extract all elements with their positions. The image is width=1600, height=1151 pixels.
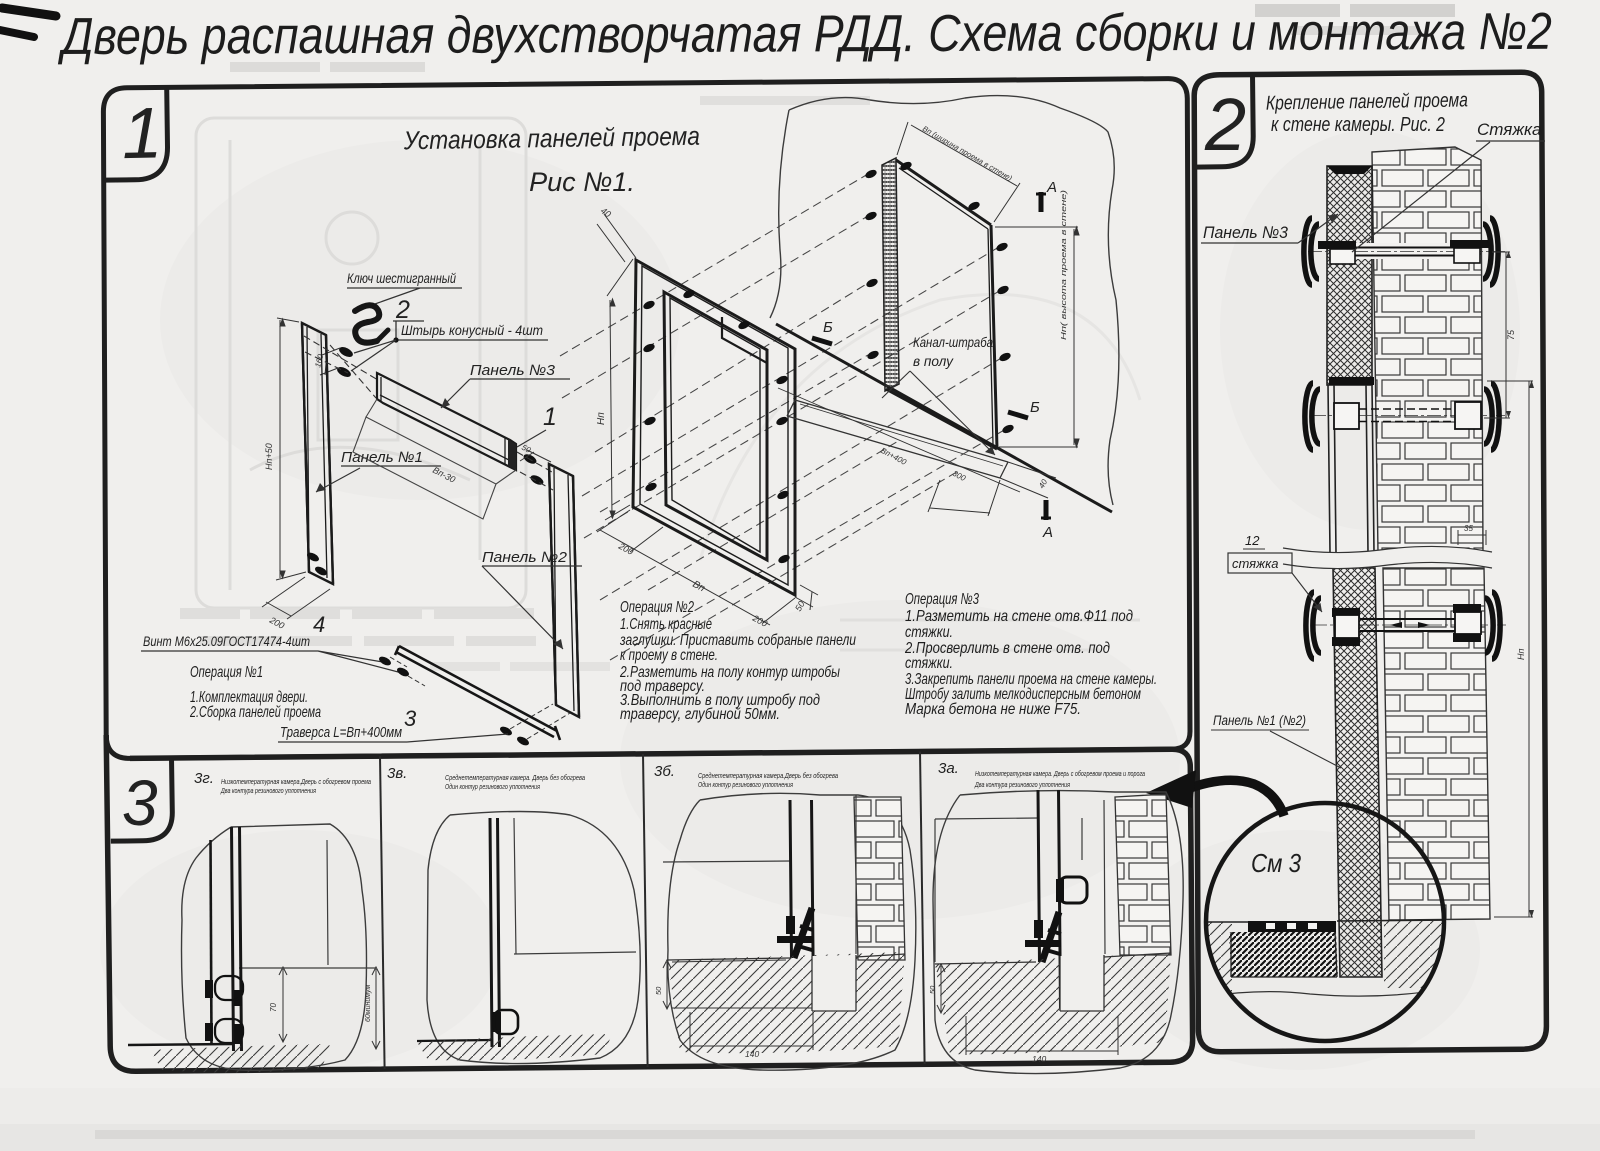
svg-text:35: 35 <box>1464 524 1473 533</box>
svg-text:Вп (ширина проема в стене): Вп (ширина проема в стене) <box>921 124 1014 183</box>
svg-text:Канал-штраба: Канал-штраба <box>913 334 993 350</box>
svg-text:60минимум: 60минимум <box>365 985 372 1022</box>
svg-text:12: 12 <box>1245 533 1260 548</box>
svg-text:Панель №2: Панель №2 <box>482 549 568 566</box>
svg-text:Траверса L=Вп+400мм: Траверса L=Вп+400мм <box>280 725 402 741</box>
svg-text:Операция №1: Операция №1 <box>190 664 263 681</box>
svg-text:Дверь распашная двухстворчатая: Дверь распашная двухстворчатая РДД. Схем… <box>58 3 1553 66</box>
svg-text:4: 4 <box>313 612 325 637</box>
svg-text:200: 200 <box>616 540 635 556</box>
svg-text:Б: Б <box>823 319 833 336</box>
svg-text:2: 2 <box>395 296 410 324</box>
svg-text:75: 75 <box>1506 329 1516 340</box>
svg-text:Крепление панелей проема: Крепление панелей проема <box>1266 89 1468 114</box>
svg-text:Штырь конусный - 4шт: Штырь конусный - 4шт <box>401 322 543 338</box>
svg-text:к проему в стене.: к проему в стене. <box>620 647 718 664</box>
svg-text:3в.: 3в. <box>387 765 407 782</box>
svg-text:3а.: 3а. <box>938 760 959 777</box>
svg-text:Один контур резинового уплотне: Один контур резинового уплотнения <box>698 781 793 789</box>
svg-text:Вп+400: Вп+400 <box>879 446 908 467</box>
svg-text:Нп( высота проема в стене): Нп( высота проема в стене) <box>1059 189 1068 340</box>
svg-text:к стене камеры. Рис. 2: к стене камеры. Рис. 2 <box>1271 114 1445 136</box>
svg-text:50: 50 <box>654 986 663 995</box>
svg-text:70: 70 <box>269 1003 278 1012</box>
svg-text:Рис №1.: Рис №1. <box>529 167 635 197</box>
svg-text:Панель №3: Панель №3 <box>1203 223 1289 242</box>
svg-text:Панель №1 (№2): Панель №1 (№2) <box>1213 713 1306 728</box>
svg-text:300: 300 <box>951 469 967 483</box>
svg-text:А: А <box>1042 524 1053 541</box>
svg-text:Операция №3: Операция №3 <box>905 591 979 608</box>
svg-text:Вп: Вп <box>691 579 707 595</box>
svg-text:в полу: в полу <box>913 353 954 369</box>
svg-text:Среднетемпературная камера. Дв: Среднетемпературная камера. Дверь без об… <box>445 774 585 782</box>
svg-text:См 3: См 3 <box>1251 848 1301 878</box>
svg-text:Один контур резинового уплотне: Один контур резинового уплотнения <box>445 783 540 791</box>
svg-text:Б: Б <box>1030 399 1040 416</box>
svg-text:стяжка: стяжка <box>1232 556 1278 571</box>
svg-text:3: 3 <box>122 767 158 839</box>
svg-text:Стяжка: Стяжка <box>1477 120 1542 139</box>
svg-text:Ключ шестигранный: Ключ шестигранный <box>347 270 456 286</box>
svg-text:1.Разметить на стене отв.Ф11 п: 1.Разметить на стене отв.Ф11 под <box>905 608 1133 625</box>
svg-text:3: 3 <box>404 706 417 731</box>
svg-text:2.Сборка панелей проема: 2.Сборка панелей проема <box>189 704 321 721</box>
svg-text:3б.: 3б. <box>654 763 675 780</box>
svg-text:Установка панелей проема: Установка панелей проема <box>403 121 700 156</box>
svg-text:Винт М6х25.09ГОСТ17474-4шт: Винт М6х25.09ГОСТ17474-4шт <box>143 633 310 649</box>
svg-text:1: 1 <box>121 93 162 174</box>
svg-text:стяжки.: стяжки. <box>905 655 953 672</box>
svg-text:Операция №2: Операция №2 <box>620 599 694 616</box>
svg-text:1.Снять красные: 1.Снять красные <box>620 616 712 633</box>
svg-text:стяжки.: стяжки. <box>905 624 953 641</box>
svg-text:2: 2 <box>1204 83 1246 166</box>
svg-text:Два контура резинового уплотне: Два контура резинового уплотнения <box>220 788 316 795</box>
svg-text:Нп: Нп <box>1516 649 1526 660</box>
svg-text:3г.: 3г. <box>194 770 214 787</box>
svg-text:Низкотемпературная камера.Двер: Низкотемпературная камера.Дверь с обогре… <box>221 778 371 786</box>
svg-text:Нп: Нп <box>596 412 607 425</box>
svg-text:1: 1 <box>543 403 557 431</box>
svg-text:Нп+50: Нп+50 <box>264 443 274 470</box>
svg-text:траверсу, глубиной 50мм.: траверсу, глубиной 50мм. <box>620 706 780 723</box>
svg-text:50: 50 <box>928 985 937 994</box>
svg-text:140: 140 <box>745 1049 759 1059</box>
svg-text:140: 140 <box>1032 1054 1046 1064</box>
svg-text:Среднетемпературная камера.Две: Среднетемпературная камера.Дверь без обо… <box>698 772 838 780</box>
svg-text:40: 40 <box>1037 477 1050 490</box>
svg-text:Низкотемпературная камера. Две: Низкотемпературная камера. Дверь с обогр… <box>975 770 1145 778</box>
svg-text:А: А <box>1046 179 1057 196</box>
svg-text:Марка бетона не ниже F75.: Марка бетона не ниже F75. <box>905 701 1081 718</box>
svg-text:Панель №3: Панель №3 <box>470 362 556 379</box>
svg-text:Два контура резинового уплотне: Два контура резинового уплотнения <box>974 782 1070 789</box>
